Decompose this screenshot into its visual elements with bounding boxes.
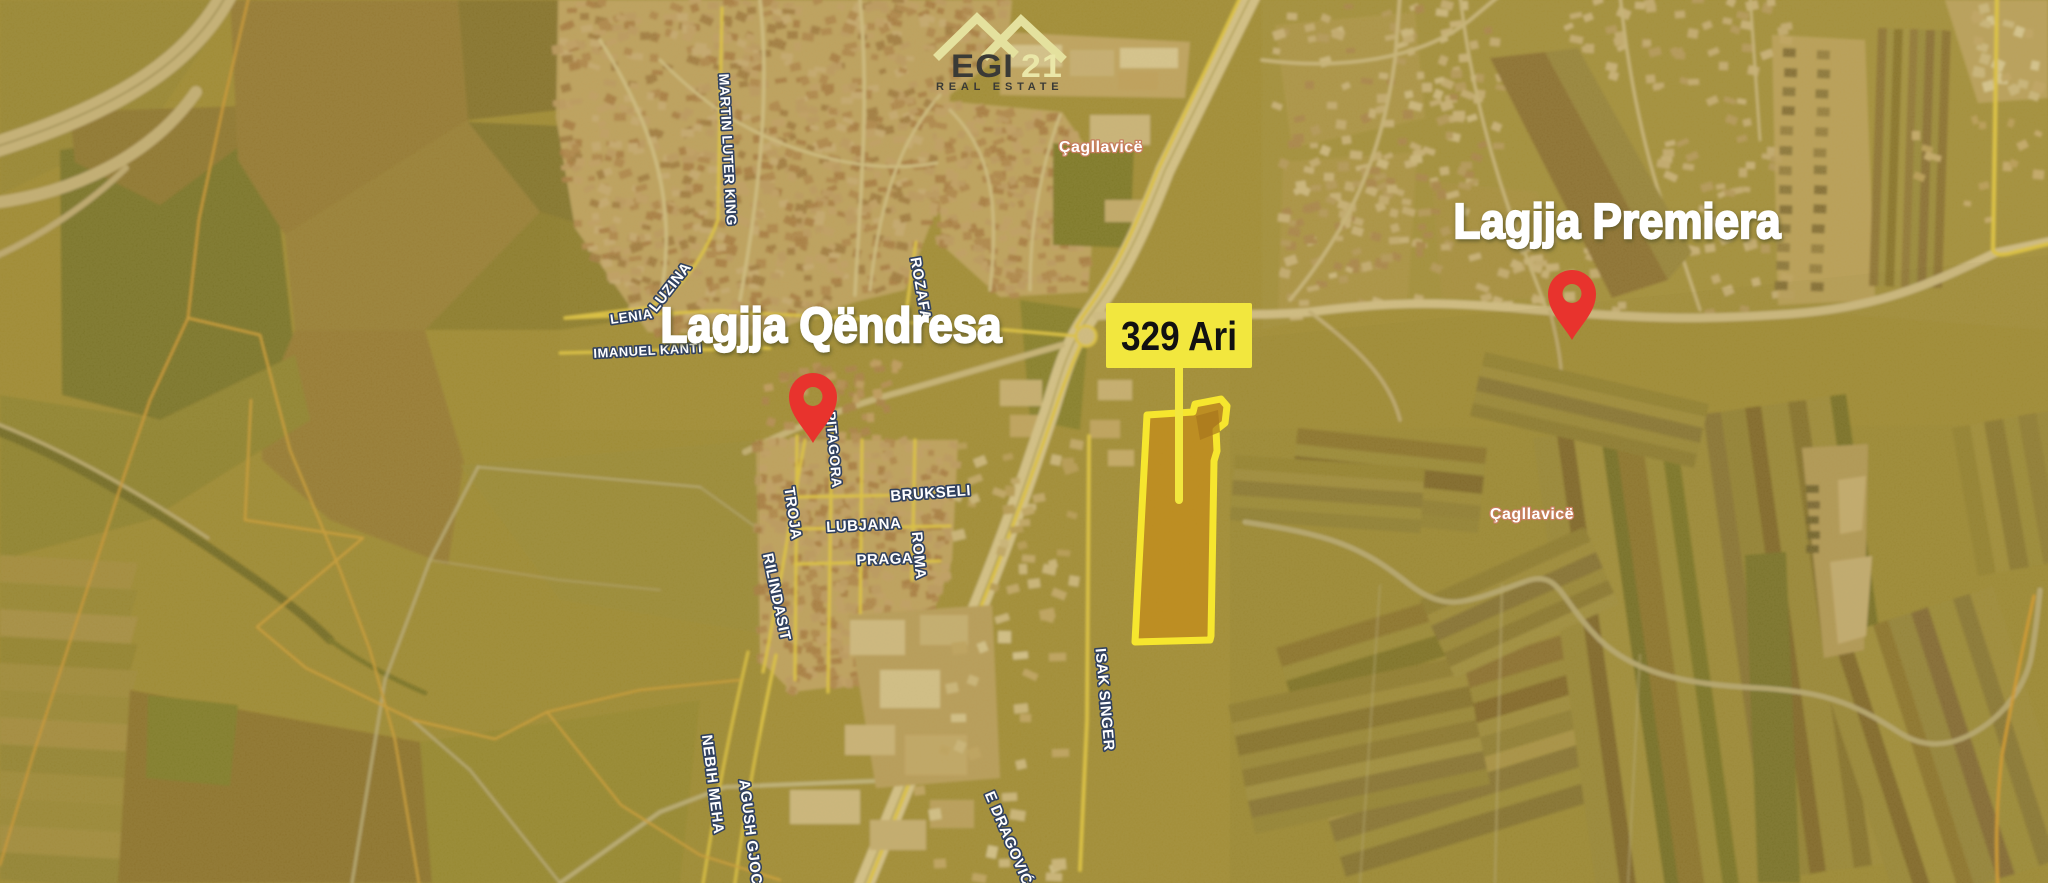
svg-text:329 Ari: 329 Ari <box>1121 313 1237 359</box>
svg-text:Lagjja Premiera: Lagjja Premiera <box>1454 195 1782 249</box>
svg-text:EGI: EGI <box>951 48 1014 84</box>
svg-text:21: 21 <box>1021 48 1063 84</box>
svg-text:Çagllavicë: Çagllavicë <box>1059 139 1143 156</box>
svg-text:PRAGA: PRAGA <box>856 550 913 569</box>
svg-text:Lagjja Qëndresa: Lagjja Qëndresa <box>661 299 1003 353</box>
svg-text:REAL ESTATE: REAL ESTATE <box>936 81 1063 93</box>
svg-text:Çagllavicë: Çagllavicë <box>1490 506 1574 523</box>
